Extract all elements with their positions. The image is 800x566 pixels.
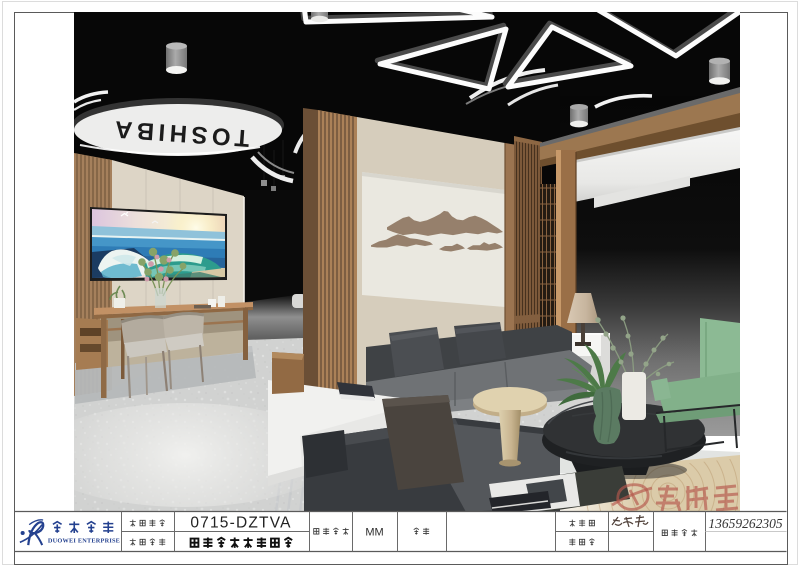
svg-text:DUOWEI ENTERPRISE: DUOWEI ENTERPRISE — [48, 538, 120, 545]
svg-text:0715-DZTVA: 0715-DZTVA — [190, 515, 291, 532]
svg-text:MM: MM — [365, 527, 383, 539]
svg-text:13659262305: 13659262305 — [708, 516, 783, 531]
